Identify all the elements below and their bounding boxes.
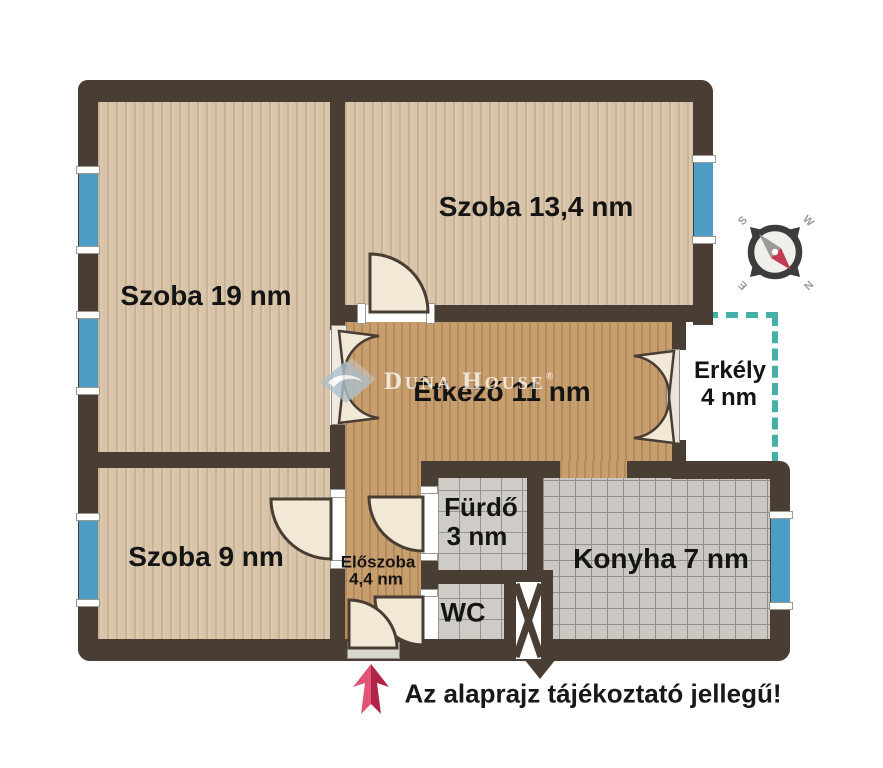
window-sill-tick <box>76 246 100 254</box>
window <box>694 162 713 237</box>
wall-segment <box>527 461 543 575</box>
room-label-wc: WC <box>441 600 486 627</box>
window-sill-tick <box>76 311 100 319</box>
shaft-box <box>516 582 541 659</box>
window-sill-tick <box>76 513 100 521</box>
door-szoba-134 <box>362 248 432 318</box>
balcony-dashed-right <box>772 314 778 464</box>
room-label-szoba-134: Szoba 13,4 nm <box>439 193 634 221</box>
compass-letter-w: W <box>800 213 816 229</box>
room-label-erkely: Erkély <box>694 359 766 383</box>
balcony-dashed-top <box>706 312 778 318</box>
window <box>79 520 98 600</box>
wall-segment <box>627 461 672 478</box>
window-sill-tick <box>692 236 716 244</box>
compass-icon: S W E N <box>730 207 820 297</box>
wall-segment <box>672 322 686 350</box>
compass-letter-e: E <box>736 278 750 292</box>
compass-letter-n: N <box>801 278 815 292</box>
wall-segment <box>78 452 345 468</box>
watermark: Duna House® <box>318 358 553 406</box>
wall-outer-bottom <box>78 639 790 661</box>
floorplan-canvas: Szoba 19 nm Szoba 13,4 nm Étkező 11 nm E… <box>0 0 883 768</box>
window-sill-tick <box>769 511 793 519</box>
wall-segment <box>430 305 713 322</box>
room-label-eloszoba-size: 4,4 nm <box>349 571 403 588</box>
room-label-erkely-size: 4 nm <box>701 386 757 410</box>
shaft-wall <box>541 570 553 661</box>
room-label-furdo-size: 3 nm <box>447 523 508 549</box>
room-label-furdo: Fürdő <box>444 494 518 520</box>
registered-mark: ® <box>546 372 553 383</box>
red-up-arrow-icon <box>350 664 392 718</box>
door-entrance <box>343 592 405 654</box>
window-sill-tick <box>692 155 716 163</box>
double-door-erkely <box>624 347 680 447</box>
wall-outer-top <box>78 80 713 102</box>
shaft-wall <box>504 570 516 661</box>
window-sill-tick <box>769 602 793 610</box>
duna-house-logo-icon <box>318 358 376 406</box>
watermark-brand-text: Duna House® <box>384 368 553 396</box>
room-label-eloszoba: Előszoba <box>341 554 416 571</box>
window <box>79 173 98 247</box>
shaft-x-icon <box>516 582 541 659</box>
window-sill-tick <box>76 166 100 174</box>
wall-segment <box>330 100 345 330</box>
compass-letter-s: S <box>736 214 750 228</box>
window-sill-tick <box>76 599 100 607</box>
room-label-konyha: Konyha 7 nm <box>573 545 749 573</box>
window <box>79 318 98 388</box>
floor-szoba-19 <box>98 100 330 452</box>
window-sill-tick <box>76 387 100 395</box>
room-label-szoba-9: Szoba 9 nm <box>128 543 284 571</box>
caption-text: Az alaprajz tájékoztató jellegű! <box>404 679 781 710</box>
room-label-szoba-19: Szoba 19 nm <box>120 282 291 310</box>
door-furdo <box>363 491 427 557</box>
window <box>771 518 790 603</box>
floor-kitchen-doorway <box>560 461 627 478</box>
entry-notch <box>524 659 556 679</box>
wall-balcony-bottom <box>672 461 780 479</box>
